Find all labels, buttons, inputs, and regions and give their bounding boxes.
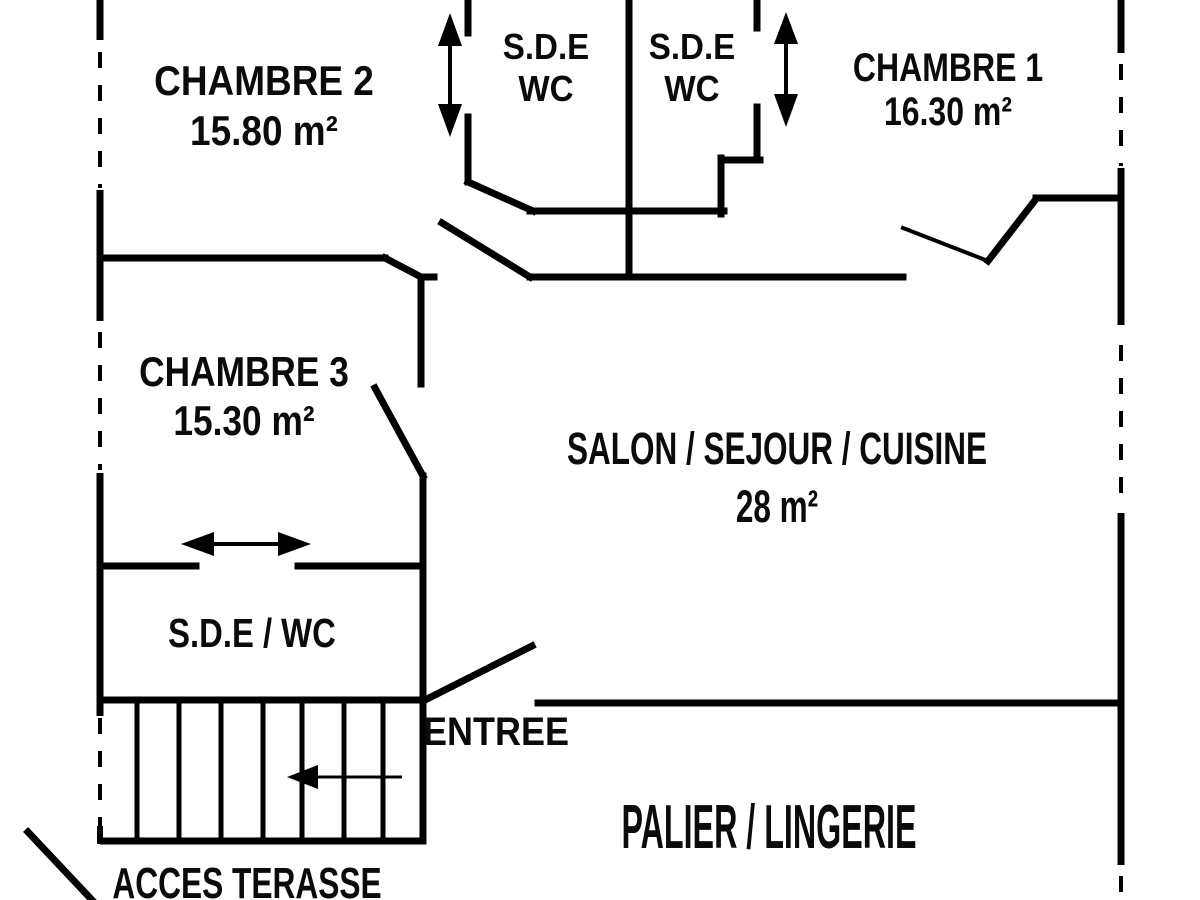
room-label-chambre3: CHAMBRE 3 15.30 m²	[110, 347, 379, 445]
room-name: S.D.E	[600, 26, 784, 68]
door-leaf-chambre1	[988, 199, 1036, 261]
room-name: ACCES TERASSE	[103, 861, 391, 900]
room-label-chambre2: CHAMBRE 2 15.80 m²	[123, 56, 405, 156]
room-label-sde-wc-bottom: S.D.E / WC	[124, 612, 380, 654]
room-area: WC	[600, 68, 784, 110]
room-area: 28 m²	[553, 478, 1001, 536]
room-name: CHAMBRE 3	[110, 347, 379, 396]
room-label-sde-wc-top-right: S.D.E WC	[600, 26, 784, 110]
stairs	[100, 700, 423, 841]
room-area: 15.30 m²	[110, 396, 379, 445]
room-label-acces-terasse: ACCES TERASSE	[103, 861, 391, 900]
room-area: 16.30 m²	[820, 90, 1076, 134]
floor-plan: CHAMBRE 2 15.80 m² S.D.E WC S.D.E WC CHA…	[0, 0, 1200, 900]
room-name: PALIER / LINGERIE	[603, 798, 936, 858]
room-area: 15.80 m²	[123, 106, 405, 156]
room-name: SALON / SEJOUR / CUISINE	[553, 420, 1001, 478]
room-label-chambre1: CHAMBRE 1 16.30 m²	[820, 46, 1076, 134]
room-label-palier-lingerie: PALIER / LINGERIE	[603, 798, 936, 858]
room-name: CHAMBRE 1	[820, 46, 1076, 90]
room-name: S.D.E / WC	[124, 612, 380, 654]
door-leaf-chambre2	[442, 223, 530, 277]
sliding-door-left-right-arrow-icon	[181, 532, 311, 556]
room-name: CHAMBRE 2	[123, 56, 405, 106]
room-label-salon-sejour-cuisine: SALON / SEJOUR / CUISINE 28 m²	[553, 420, 1001, 536]
door-swing-chambre1	[903, 228, 988, 261]
room-label-entree: ENTREE	[388, 711, 604, 753]
door-leaf-chambre3	[375, 388, 423, 476]
room-name: ENTREE	[388, 711, 604, 753]
door-leaf-entree	[423, 646, 532, 701]
stair-treads	[137, 703, 383, 838]
